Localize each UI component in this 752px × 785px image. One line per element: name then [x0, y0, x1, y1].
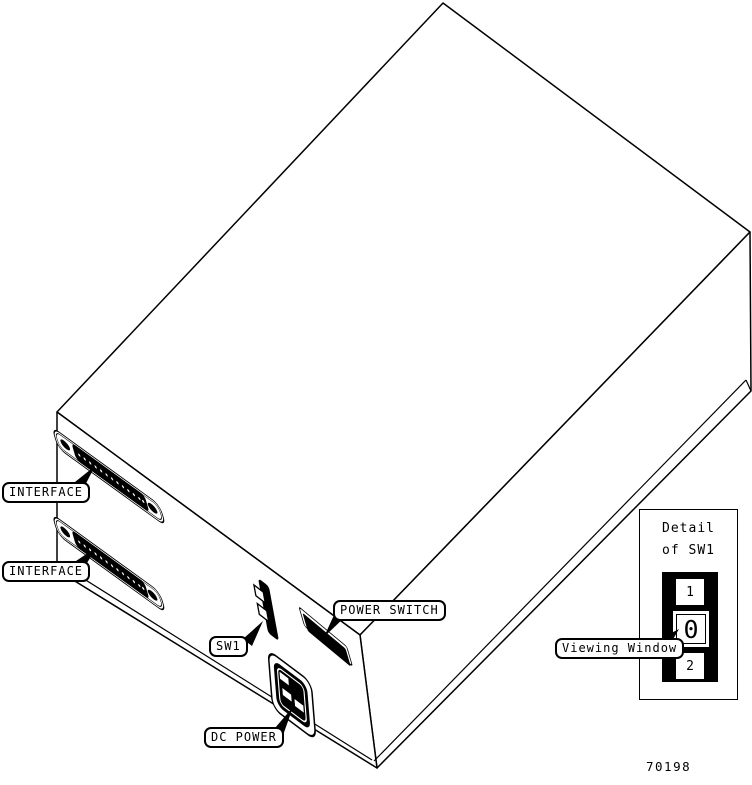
position-2-digit: 2: [686, 659, 694, 674]
callout-interface-top: INTERFACE: [2, 482, 90, 503]
interface-top-label: INTERFACE: [9, 485, 83, 499]
interface-bottom-label: INTERFACE: [9, 564, 83, 578]
callout-viewing-window: Viewing Window: [555, 638, 684, 659]
power-switch-label: POWER SWITCH: [340, 603, 439, 617]
position-1-digit: 1: [686, 585, 694, 600]
dc-power-label: DC POWER: [211, 730, 277, 744]
callout-dc-power: DC POWER: [204, 727, 284, 748]
inset-title-line1: Detail: [640, 518, 737, 540]
rear-panel-diagram: INTERFACE INTERFACE SW1 POWER SWITCH DC …: [0, 0, 752, 785]
sw1-detail-inset: Detail of SW1 1 0 2: [639, 509, 738, 700]
callout-interface-bottom: INTERFACE: [2, 561, 90, 582]
viewing-window-label: Viewing Window: [562, 641, 677, 655]
switch-position-1: 1: [676, 579, 704, 605]
callout-sw1: SW1: [209, 636, 248, 657]
inset-title-line2: of SW1: [640, 540, 737, 562]
callout-power-switch: POWER SWITCH: [333, 600, 446, 621]
figure-number: 70198: [646, 759, 691, 774]
sw1-label: SW1: [216, 639, 241, 653]
